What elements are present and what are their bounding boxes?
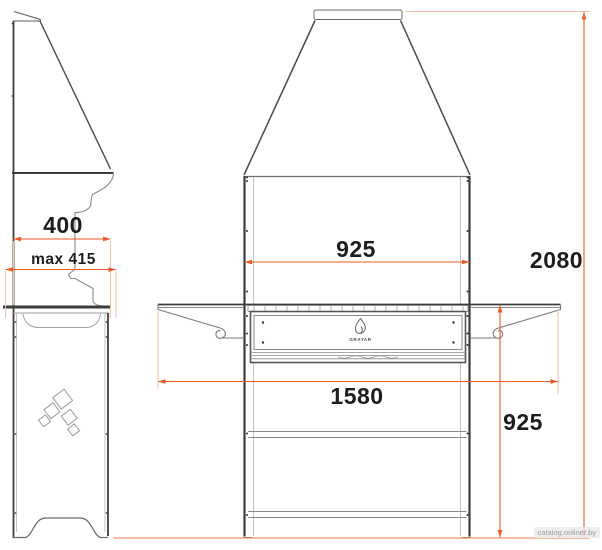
arrow-down-icon — [498, 530, 503, 538]
dim-label-worktop-height: 925 — [503, 409, 543, 435]
side-hood-slope — [40, 21, 111, 169]
left-shelf — [158, 305, 244, 339]
dim-firebox-width-925: 925 — [245, 236, 470, 264]
arrow-left-icon — [6, 267, 14, 272]
dimensions: 400 max 415 925 1580 925 — [6, 12, 590, 539]
diamond-leaves-logo — [37, 386, 85, 436]
side-chimney-cap — [13, 12, 41, 22]
brand-logo-text: GRATAR — [349, 337, 371, 342]
arrow-left-icon — [245, 260, 253, 265]
side-view — [3, 12, 114, 539]
right-shelf — [470, 305, 561, 339]
arrow-right-icon — [109, 267, 117, 272]
arrow-up-icon — [582, 12, 587, 20]
dim-depth-400: 400 — [14, 212, 111, 241]
arrow-right-icon — [103, 237, 111, 242]
dim-label-firebox-width: 925 — [336, 236, 376, 262]
watermark: catalog.onliner.by — [534, 527, 600, 538]
dim-label-overall-width: 1580 — [330, 383, 383, 409]
front-hood-slopes — [244, 21, 470, 176]
front-cross-rails — [248, 432, 467, 518]
arrow-left-icon — [158, 379, 166, 384]
dim-overall-width-1580: 1580 — [158, 379, 558, 409]
arrow-left-icon — [14, 237, 22, 242]
arrow-right-icon — [551, 379, 559, 384]
chimney-collar — [314, 10, 402, 20]
side-cabinet-inner-lines — [17, 313, 106, 532]
dim-label-depth-max: max 415 — [31, 251, 96, 268]
side-bottom-arch — [14, 518, 109, 538]
arrow-up-icon — [498, 305, 503, 313]
drawing-canvas: GRATAR 400 — [0, 0, 602, 550]
side-bolt-dots — [12, 23, 108, 514]
side-basin — [23, 314, 101, 328]
left-shelf-curl — [216, 328, 225, 338]
right-shelf-curl — [493, 328, 502, 338]
dim-worktop-height-925: 925 — [498, 305, 543, 538]
dim-label-overall-height: 2080 — [530, 247, 583, 273]
dim-label-depth: 400 — [43, 212, 83, 238]
arrow-right-icon — [462, 260, 470, 265]
dim-depth-max-415: max 415 — [6, 251, 117, 272]
skewer-rail — [248, 306, 468, 312]
dim-overall-height-2080: 2080 — [530, 12, 586, 538]
bbq-technical-drawing: GRATAR 400 — [0, 0, 602, 550]
